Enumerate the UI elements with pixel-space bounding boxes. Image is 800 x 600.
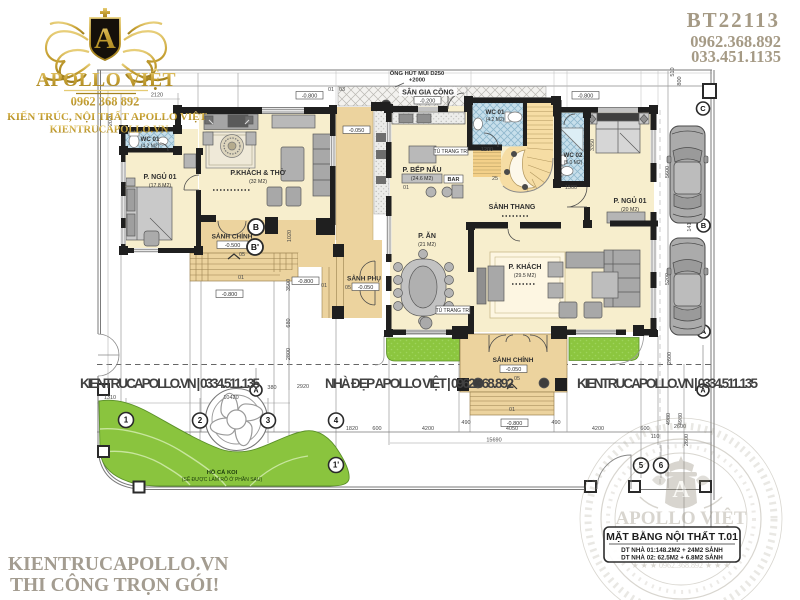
svg-text:380: 380	[267, 385, 276, 391]
svg-text:4: 4	[334, 416, 339, 425]
svg-text:(17.8 M2): (17.8 M2)	[149, 183, 171, 189]
svg-text:2120: 2120	[151, 93, 163, 99]
svg-text:1310: 1310	[104, 395, 116, 401]
svg-text:(29.5 M2): (29.5 M2)	[514, 273, 536, 279]
svg-text:3500: 3500	[286, 279, 292, 291]
svg-text:2: 2	[198, 416, 203, 425]
svg-text:P.KHÁCH & THỜ: P.KHÁCH & THỜ	[230, 168, 285, 177]
svg-text:(4.2 M2): (4.2 M2)	[141, 144, 160, 150]
svg-text:SẢNH CHÍNH: SẢNH CHÍNH	[493, 355, 534, 364]
svg-text:110: 110	[651, 434, 660, 440]
svg-text:01: 01	[328, 87, 334, 93]
svg-text:SẢNH CHÍNH: SẢNH CHÍNH	[212, 232, 253, 241]
svg-text:BAR: BAR	[448, 177, 460, 183]
svg-text:03: 03	[339, 87, 345, 93]
svg-text:SẢNH PHỤ: SẢNH PHỤ	[347, 274, 381, 283]
svg-text:1': 1'	[333, 461, 339, 470]
svg-text:4050: 4050	[506, 426, 518, 432]
svg-text:6: 6	[659, 461, 664, 470]
svg-text:WC 02: WC 02	[564, 152, 583, 159]
svg-text:-0.050: -0.050	[349, 128, 365, 134]
svg-text:-0.200: -0.200	[420, 99, 436, 105]
svg-text:490: 490	[461, 420, 470, 426]
svg-text:(SẼ ĐƯỢC LÀM RÕ Ở PHẦN SAU): (SẼ ĐƯỢC LÀM RÕ Ở PHẦN SAU)	[182, 476, 263, 483]
svg-text:05: 05	[239, 252, 245, 258]
svg-text:C: C	[700, 104, 706, 113]
svg-text:600: 600	[372, 426, 381, 432]
svg-text:KIENTRUCAPOLLO.VN: KIENTRUCAPOLLO.VN	[8, 554, 228, 575]
svg-text:APOLLO VIỆT: APOLLO VIỆT	[36, 69, 176, 91]
svg-text:MẶT BẰNG NỘI THẤT T.01: MẶT BẰNG NỘI THẤT T.01	[606, 530, 738, 543]
svg-text:(5.0 M2): (5.0 M2)	[564, 160, 583, 166]
svg-text:TỦ TRANG TRÍ: TỦ TRANG TRÍ	[434, 148, 469, 155]
svg-text:1200: 1200	[481, 147, 493, 153]
svg-text:B': B'	[251, 242, 259, 252]
svg-text:WC 01: WC 01	[486, 109, 505, 116]
svg-text:A: A	[94, 22, 116, 55]
svg-text:3350: 3350	[590, 139, 596, 151]
svg-text:ỐNG HÚT MÙI D250: ỐNG HÚT MÙI D250	[390, 70, 444, 77]
svg-text:680: 680	[286, 318, 292, 327]
svg-text:(4.2 M2): (4.2 M2)	[486, 117, 505, 123]
svg-text:01: 01	[403, 185, 409, 191]
svg-text:DT NHÀ 02: 62.5M2 + 6.8M2 SẢNH: DT NHÀ 02: 62.5M2 + 6.8M2 SẢNH	[621, 553, 723, 562]
svg-text:NHÀ ĐẸP APOLLO VIỆT | 0962.368: NHÀ ĐẸP APOLLO VIỆT | 0962.368.892	[325, 376, 514, 391]
svg-text:2920: 2920	[297, 384, 309, 390]
svg-text:25: 25	[492, 176, 498, 182]
svg-text:KIENTRUCAPOLLO.VN: KIENTRUCAPOLLO.VN	[50, 125, 169, 136]
svg-text:-0.050: -0.050	[358, 285, 374, 291]
svg-text:490: 490	[551, 420, 560, 426]
svg-text:-0.800: -0.800	[298, 279, 314, 285]
svg-text:THI CÔNG TRỌN GÓI!: THI CÔNG TRỌN GÓI!	[10, 574, 219, 596]
svg-text:-0.800: -0.800	[302, 94, 318, 100]
svg-text:3: 3	[266, 416, 271, 425]
svg-text:+2000: +2000	[409, 78, 425, 84]
svg-text:KIẾN TRÚC, NỘI THẤT APOLLO VIỆ: KIẾN TRÚC, NỘI THẤT APOLLO VIỆT	[7, 110, 207, 123]
svg-text:-0.800: -0.800	[222, 292, 238, 298]
svg-text:P. NGỦ 01: P. NGỦ 01	[614, 196, 647, 205]
svg-text:TỦ TRANG TRÍ: TỦ TRANG TRÍ	[436, 307, 471, 314]
svg-text:B: B	[253, 222, 259, 232]
svg-text:1500: 1500	[565, 185, 577, 191]
svg-text:P. ĂN: P. ĂN	[418, 231, 436, 240]
svg-text:01: 01	[238, 275, 244, 281]
svg-text:HỒ CÁ KOI: HỒ CÁ KOI	[207, 469, 238, 476]
svg-text:10420: 10420	[223, 395, 238, 401]
svg-text:-0.500: -0.500	[225, 243, 241, 249]
svg-text:0962 368 892: 0962 368 892	[71, 95, 140, 109]
svg-text:BT22113: BT22113	[687, 8, 780, 32]
svg-text:KIENTRUCAPOLLO.VN | 0334.511.1: KIENTRUCAPOLLO.VN | 0334.511.135	[80, 376, 260, 391]
svg-text:01: 01	[321, 283, 327, 289]
svg-text:A: A	[672, 477, 690, 503]
svg-text:P. NGỦ 01: P. NGỦ 01	[144, 172, 177, 181]
svg-text:KIENTRUCAPOLLO.VN | 0334.511.1: KIENTRUCAPOLLO.VN | 0334.511.135	[577, 376, 758, 391]
svg-text:800: 800	[677, 76, 683, 85]
svg-text:05: 05	[345, 285, 351, 291]
svg-text:(24.6 M2): (24.6 M2)	[411, 176, 433, 182]
svg-text:(21 M2): (21 M2)	[418, 242, 436, 248]
svg-text:05: 05	[514, 376, 520, 382]
svg-text:15690: 15690	[486, 438, 501, 444]
svg-text:-0.800: -0.800	[578, 94, 594, 100]
svg-text:510: 510	[670, 67, 676, 76]
svg-text:WC 01: WC 01	[141, 136, 160, 143]
svg-text:(20 M2): (20 M2)	[621, 207, 639, 213]
svg-text:2800: 2800	[286, 348, 292, 360]
svg-text:P. KHÁCH: P. KHÁCH	[509, 262, 542, 271]
svg-text:4200: 4200	[592, 426, 604, 432]
svg-text:B: B	[701, 221, 707, 230]
svg-text:SÂN GIA CÔNG: SÂN GIA CÔNG	[402, 88, 454, 97]
svg-text:1: 1	[124, 416, 129, 425]
svg-text:APOLLO VIỆT: APOLLO VIỆT	[615, 507, 746, 529]
svg-text:033.451.1135: 033.451.1135	[691, 47, 781, 66]
svg-text:SẢNH THANG: SẢNH THANG	[489, 202, 536, 211]
svg-text:01: 01	[509, 407, 515, 413]
svg-text:(32 M2): (32 M2)	[249, 179, 267, 185]
svg-text:2600: 2600	[667, 352, 673, 364]
svg-text:1020: 1020	[287, 230, 293, 242]
svg-text:1820: 1820	[346, 426, 358, 432]
svg-text:DT NHÀ 01:148.2M2 + 24M2 SẢNH: DT NHÀ 01:148.2M2 + 24M2 SẢNH	[621, 545, 723, 554]
svg-text:-0.050: -0.050	[506, 367, 522, 373]
svg-text:4200: 4200	[422, 426, 434, 432]
